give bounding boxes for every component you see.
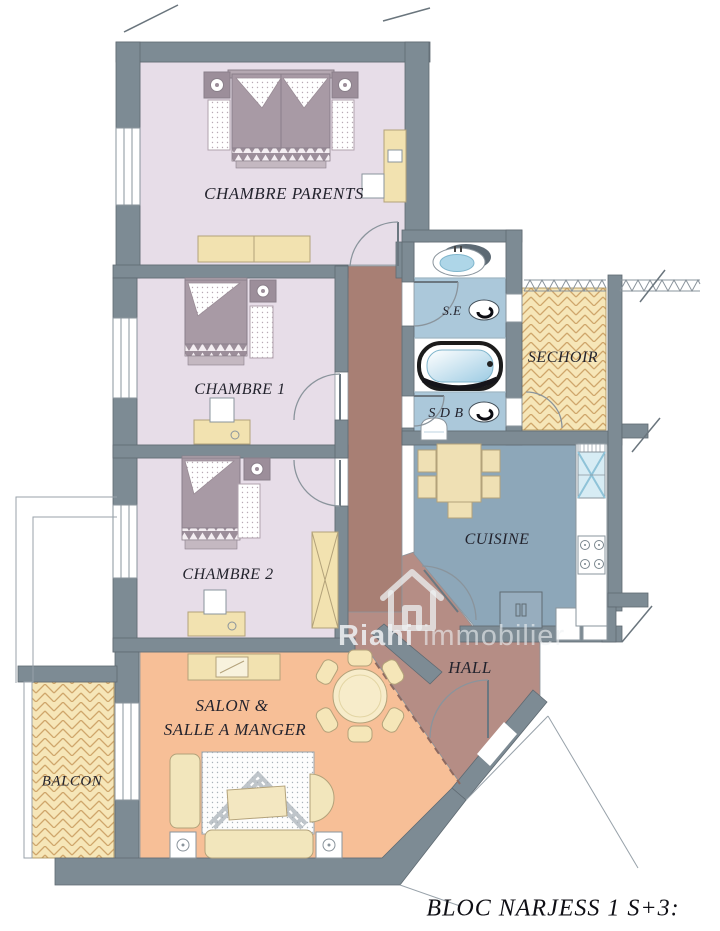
wall	[405, 42, 429, 242]
watermark-suffix: immobilier	[423, 620, 565, 652]
wall	[402, 326, 414, 396]
sofa-icon	[170, 754, 200, 828]
salon-label-line1: SALON &	[196, 696, 269, 716]
corridor-floor	[348, 266, 402, 616]
wall	[402, 242, 414, 282]
window	[116, 128, 140, 205]
kitchen-sink-icon	[578, 452, 605, 498]
wall	[113, 278, 137, 318]
bath-vent-window	[506, 398, 522, 426]
wall	[402, 230, 522, 242]
chambre1-label: CHAMBRE 1	[194, 381, 285, 399]
floor-plan-drawing	[0, 0, 720, 931]
bathtub-icon	[419, 343, 501, 389]
nightstand-icon	[250, 280, 276, 302]
wall-stub	[622, 424, 648, 438]
coffee-table-icon	[227, 786, 287, 820]
wall	[113, 638, 355, 652]
balcony-rail	[24, 682, 32, 858]
stove-icon	[578, 536, 605, 574]
balcon-tile-floor	[30, 682, 114, 858]
bath-vent-window	[506, 294, 522, 322]
wardrobe-icon	[312, 532, 338, 628]
single-bed-icon	[185, 278, 247, 365]
bedside-mat-icon	[250, 306, 273, 358]
hall-label: HALL	[448, 658, 492, 678]
nightstand-icon	[204, 72, 230, 98]
side-table-icon	[316, 832, 342, 858]
wardrobe-icon	[198, 236, 310, 262]
terrace-outline	[16, 497, 117, 683]
wall	[113, 265, 348, 278]
wall	[115, 800, 139, 862]
watermark-text: Riahi immobilier	[338, 620, 565, 653]
nightstand-icon	[332, 72, 358, 98]
balcon-label: BALCON	[42, 774, 103, 791]
nightstand-icon	[244, 458, 270, 480]
chambre-parents-label: CHAMBRE PARENTS	[204, 184, 364, 204]
toilet-icon	[469, 402, 499, 422]
watermark-brand: Riahi	[338, 620, 414, 652]
wall	[335, 420, 348, 458]
cuisine-label: CUISINE	[465, 531, 530, 549]
wall	[608, 275, 622, 611]
balcony-door-window	[115, 703, 139, 800]
console-table-icon	[188, 654, 280, 680]
sdb-label: S D B	[428, 406, 463, 422]
bedside-mat-icon	[238, 484, 260, 538]
sofa-icon	[205, 830, 313, 858]
single-bed-icon	[182, 456, 240, 549]
window	[113, 505, 137, 578]
side-table-icon	[170, 832, 196, 858]
wall	[116, 42, 430, 62]
floor-plan: CHAMBRE PARENTS CHAMBRE 1 CHAMBRE 2 SALO…	[0, 0, 720, 931]
plan-title: BLOC NARJESS 1 S+3:	[426, 896, 679, 923]
toilet-icon	[469, 300, 499, 320]
sechoir-label: SECHOIR	[528, 349, 598, 367]
chambre2-label: CHAMBRE 2	[182, 566, 273, 584]
wall	[115, 652, 139, 703]
wall	[335, 266, 348, 372]
salon-label-line2: SALLE A MANGER	[164, 720, 306, 740]
wall-stub	[608, 593, 648, 607]
window	[113, 318, 137, 398]
wall	[116, 42, 140, 128]
se-label: S.E	[442, 303, 461, 319]
